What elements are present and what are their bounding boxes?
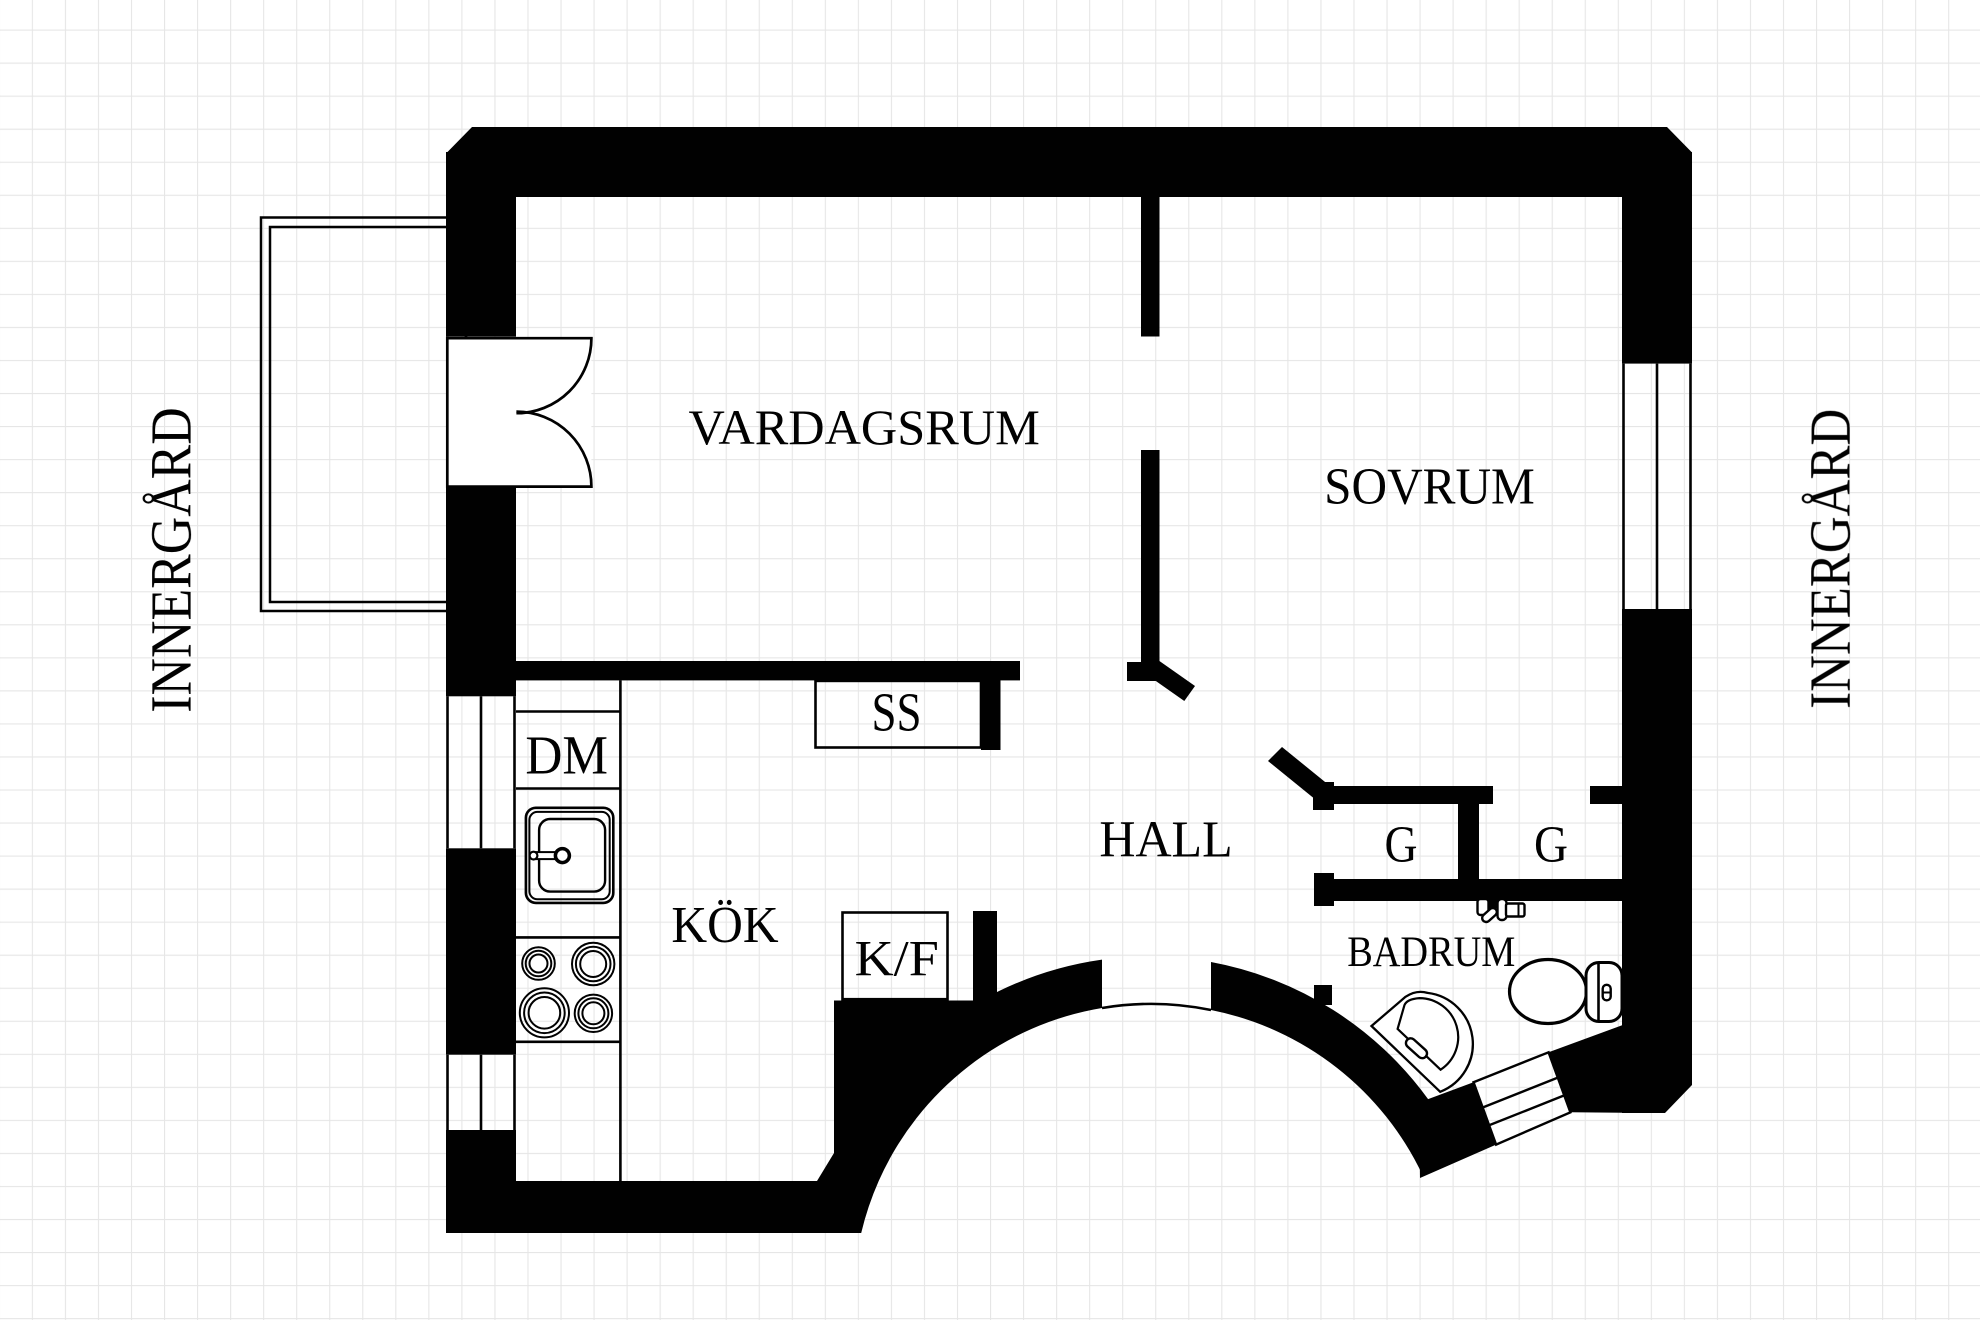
svg-text:KÖK: KÖK xyxy=(671,897,779,954)
svg-text:DM: DM xyxy=(525,725,608,786)
svg-text:INNERGÅRD: INNERGÅRD xyxy=(1798,409,1863,709)
svg-text:HALL: HALL xyxy=(1099,811,1232,868)
svg-text:K/F: K/F xyxy=(855,931,939,987)
svg-text:INNERGÅRD: INNERGÅRD xyxy=(139,407,204,713)
svg-text:SOVRUM: SOVRUM xyxy=(1324,459,1535,516)
svg-text:SS: SS xyxy=(872,682,922,743)
svg-text:G: G xyxy=(1385,817,1418,874)
svg-text:VARDAGSRUM: VARDAGSRUM xyxy=(689,400,1040,455)
svg-text:BADRUM: BADRUM xyxy=(1347,929,1515,976)
svg-text:G: G xyxy=(1534,817,1568,874)
